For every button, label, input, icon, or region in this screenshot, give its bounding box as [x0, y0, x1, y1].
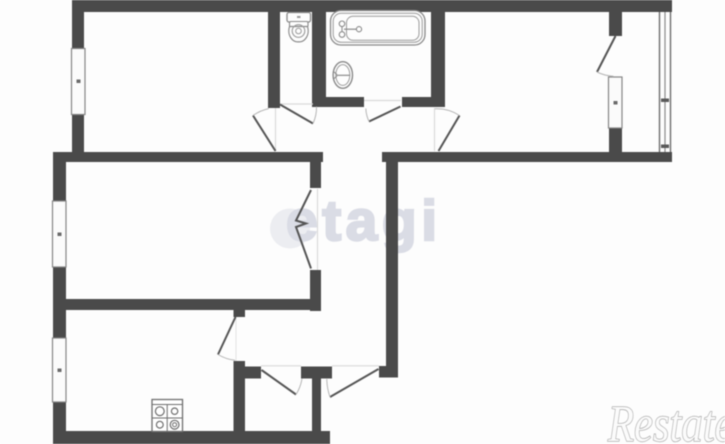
svg-text:etagi: etagi — [286, 189, 442, 253]
svg-text:Restate: Restate — [607, 396, 725, 444]
